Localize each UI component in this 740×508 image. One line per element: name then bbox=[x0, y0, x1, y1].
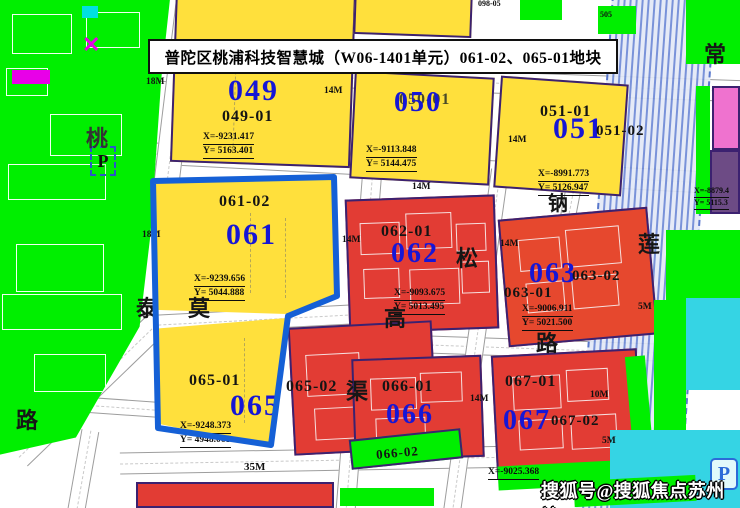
map-stage: ✕ P P 049 049-01 X=-9231.417 Y= 5163.401… bbox=[0, 0, 740, 508]
road-label-qu: 渠 bbox=[346, 381, 368, 403]
coord-x: X=-9113.848 bbox=[366, 144, 417, 158]
coords-065: X=-9248.373 Y= 4948.068 bbox=[180, 420, 231, 448]
coords-049: X=-9231.417 Y= 5163.401 bbox=[203, 131, 254, 159]
road-width-label: 14M bbox=[508, 136, 526, 146]
road-label-mo: 莫 bbox=[188, 298, 210, 320]
title-banner: 普陀区桃浦科技智慧城（W06-1401单元）061-02、065-01地块 bbox=[148, 39, 618, 74]
road-width-label: 5M bbox=[602, 437, 616, 447]
coords-051: X=-8991.773 Y= 5126.947 bbox=[538, 168, 589, 196]
parcel-code-066: 066 bbox=[386, 401, 434, 429]
coords-right: X=-8879.4 Y= 5115.3 bbox=[694, 186, 729, 210]
road-label-chang: 常 bbox=[704, 44, 726, 66]
road-width-label: 14M bbox=[324, 87, 342, 97]
building-outline bbox=[12, 14, 72, 54]
coords-050: X=-9113.848 Y= 5144.475 bbox=[366, 144, 417, 172]
coord-y: Y= 5163.401 bbox=[203, 145, 254, 159]
magenta-block bbox=[12, 70, 50, 84]
green-bottom-small bbox=[340, 488, 434, 506]
building-outline bbox=[2, 294, 122, 330]
road-width-label: 14M bbox=[470, 395, 488, 405]
parcel-code-062: 062 bbox=[391, 240, 439, 268]
coord-x: X=-9231.417 bbox=[203, 131, 254, 145]
road-label-na: 钠 bbox=[548, 194, 568, 214]
road-width-label: 35M bbox=[244, 462, 265, 473]
coords-063: X=-9006.911 Y= 5021.500 bbox=[522, 303, 573, 331]
road-width-label: 14M bbox=[412, 183, 430, 193]
coord-x: X=-9025.368 bbox=[488, 466, 539, 480]
parcel-code-050: 050 bbox=[394, 89, 442, 117]
road-width-label: 18M bbox=[146, 78, 164, 88]
road-label-lian: 莲 bbox=[638, 234, 660, 256]
coord-x: X=-9093.675 bbox=[394, 287, 445, 301]
building-outline bbox=[34, 354, 106, 392]
coord-x: X=-9006.911 bbox=[522, 303, 573, 317]
parcel-sub-049: 049-01 bbox=[222, 109, 273, 125]
parcel-sub-066-02: 066-02 bbox=[376, 444, 420, 461]
parcel-code-067: 067 bbox=[503, 407, 551, 435]
road-width-label: 5M bbox=[638, 303, 652, 313]
cyan-block bbox=[82, 6, 98, 18]
parcel-code-049: 049 bbox=[228, 76, 279, 106]
coord-y: Y= 5021.500 bbox=[522, 317, 573, 331]
coord-x: X=-9239.656 bbox=[194, 273, 245, 287]
coord-y: Y= 4948.068 bbox=[180, 434, 231, 448]
road-width-label: 10M bbox=[590, 391, 608, 401]
parcel-sub-067: 067-01 bbox=[505, 374, 556, 390]
parcel-sub-063-02: 063-02 bbox=[572, 269, 621, 284]
road-width-label: 14M bbox=[342, 236, 360, 246]
parcel-code-065: 065 bbox=[230, 391, 281, 421]
coord-x: X=-8879.4 bbox=[694, 186, 729, 198]
coord-y: Y= 5144.475 bbox=[366, 158, 417, 172]
parcel-sub-065-02: 065-02 bbox=[286, 379, 337, 395]
coord-y: Y= 5115.3 bbox=[694, 198, 729, 210]
parcel-sub-051-02: 051-02 bbox=[596, 124, 645, 139]
parcel-sub-067-02: 067-02 bbox=[551, 414, 600, 429]
road-width-label: 14M bbox=[500, 240, 518, 250]
road bbox=[67, 429, 99, 508]
parcel-sub-061: 061-02 bbox=[219, 194, 270, 210]
green-right-mid bbox=[666, 230, 740, 302]
tiny-label: 098-05 bbox=[478, 0, 501, 8]
parcel-sub-065: 065-01 bbox=[189, 373, 240, 389]
parcel-dashed-line bbox=[285, 218, 286, 298]
parcel-code-063: 063 bbox=[529, 260, 577, 288]
road-label-gao: 高 bbox=[384, 308, 406, 330]
road-label-lu-left: 路 bbox=[16, 410, 38, 432]
coord-x: X=-8991.773 bbox=[538, 168, 589, 182]
coord-x: X=-9248.373 bbox=[180, 420, 231, 434]
road-width-label: 18M bbox=[142, 231, 160, 241]
red-bottom-strip bbox=[136, 482, 334, 508]
cyan-right bbox=[686, 298, 740, 390]
parcel-sub-066: 066-01 bbox=[382, 379, 433, 395]
tiny-label: 505 bbox=[600, 11, 612, 19]
parcel-code-061: 061 bbox=[226, 220, 277, 250]
magenta-cross-icon: ✕ bbox=[82, 32, 100, 58]
green-small-top-a bbox=[520, 0, 562, 20]
watermark: 搜狐号@搜狐焦点苏州站 bbox=[541, 477, 740, 508]
parcel-050-top bbox=[353, 0, 472, 38]
building-outline bbox=[16, 244, 104, 292]
coords-067: X=-9025.368 bbox=[488, 466, 539, 480]
parcel-sub-063: 063-01 bbox=[504, 286, 553, 301]
road-label-lu-mid: 路 bbox=[536, 333, 558, 355]
parcel-pink-right bbox=[712, 86, 740, 150]
parking-letter: P bbox=[98, 151, 109, 172]
road-label-tai: 泰 bbox=[136, 298, 158, 320]
road-label-tao: 桃 bbox=[86, 128, 108, 150]
road-label-song: 松 bbox=[456, 248, 478, 270]
banner-title: 普陀区桃浦科技智慧城（W06-1401单元）061-02、065-01地块 bbox=[165, 46, 602, 68]
